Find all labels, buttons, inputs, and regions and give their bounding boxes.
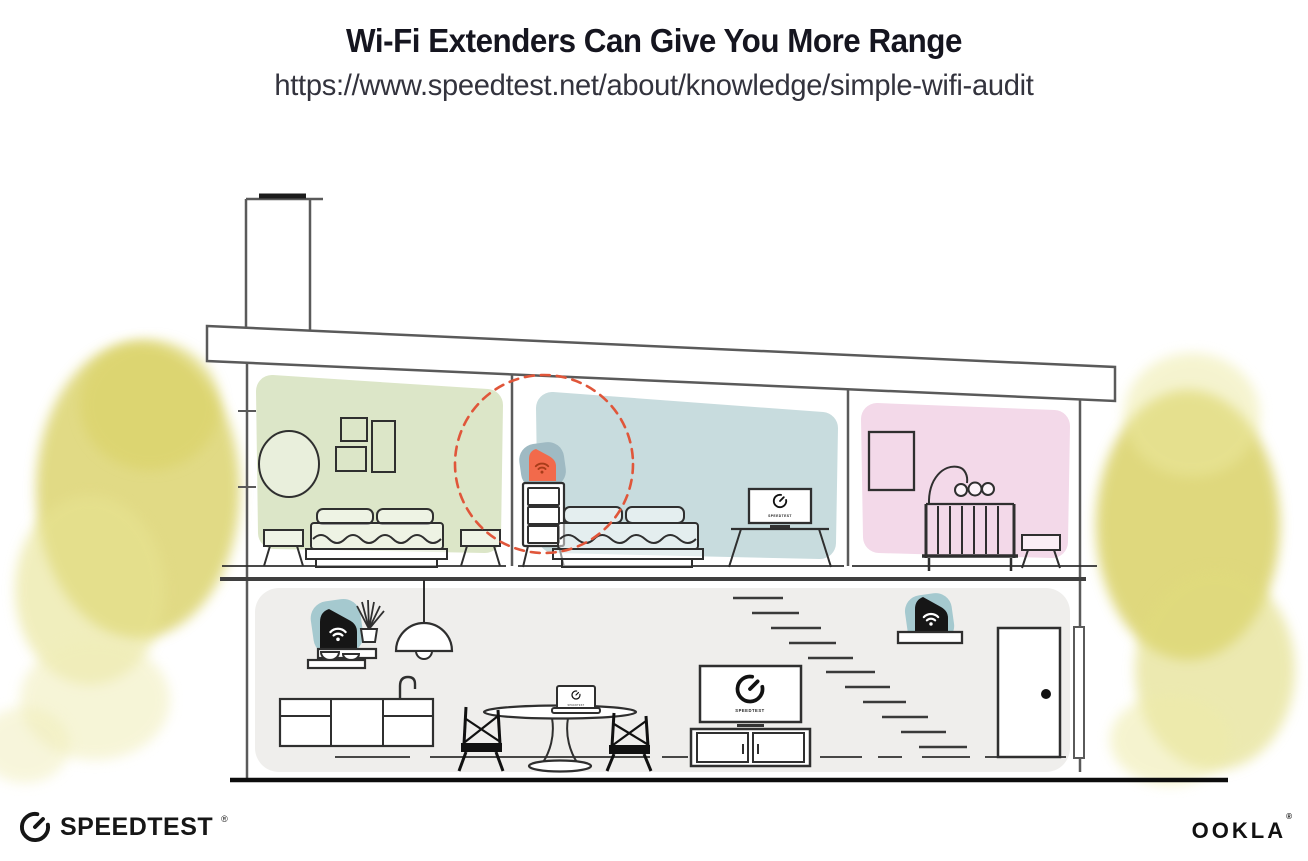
- bed: [306, 509, 447, 567]
- media-console: [691, 729, 810, 766]
- speedtest-logo: SPEEDTEST®: [18, 810, 228, 844]
- ookla-trademark: ®: [1286, 812, 1292, 821]
- page-header: Wi-Fi Extenders Can Give You More Range …: [0, 22, 1308, 103]
- ookla-wordmark: OOKLA: [1192, 818, 1286, 843]
- front-door: [998, 628, 1060, 757]
- laptop-label: SPEEDTEST: [568, 704, 585, 707]
- living-room-tv: SPEEDTEST: [700, 666, 801, 727]
- entry-shelf: [898, 632, 962, 643]
- round-mirror: [259, 431, 319, 497]
- page-title: Wi-Fi Extenders Can Give You More Range: [33, 22, 1276, 60]
- nursery-wall: [877, 419, 1054, 542]
- ookla-logo: OOKLA®: [1192, 818, 1292, 844]
- door-knob: [1041, 689, 1051, 699]
- source-url: https://www.speedtest.net/about/knowledg…: [20, 69, 1289, 103]
- foliage-right: [1096, 353, 1295, 785]
- laptop: SPEEDTEST: [552, 686, 600, 713]
- speedtest-gauge-icon: [18, 810, 52, 844]
- chimney: [246, 196, 323, 340]
- living-room-tv-label: SPEEDTEST: [735, 708, 764, 713]
- bedroom-tv-label: SPEEDTEST: [768, 514, 792, 518]
- speedtest-wordmark: SPEEDTEST: [60, 813, 213, 842]
- bed: [553, 507, 703, 567]
- house-illustration: SPEEDTEST: [0, 0, 1308, 861]
- speedtest-trademark: ®: [221, 814, 228, 824]
- foliage-left: [0, 340, 240, 783]
- wall-pillar: [1074, 627, 1084, 758]
